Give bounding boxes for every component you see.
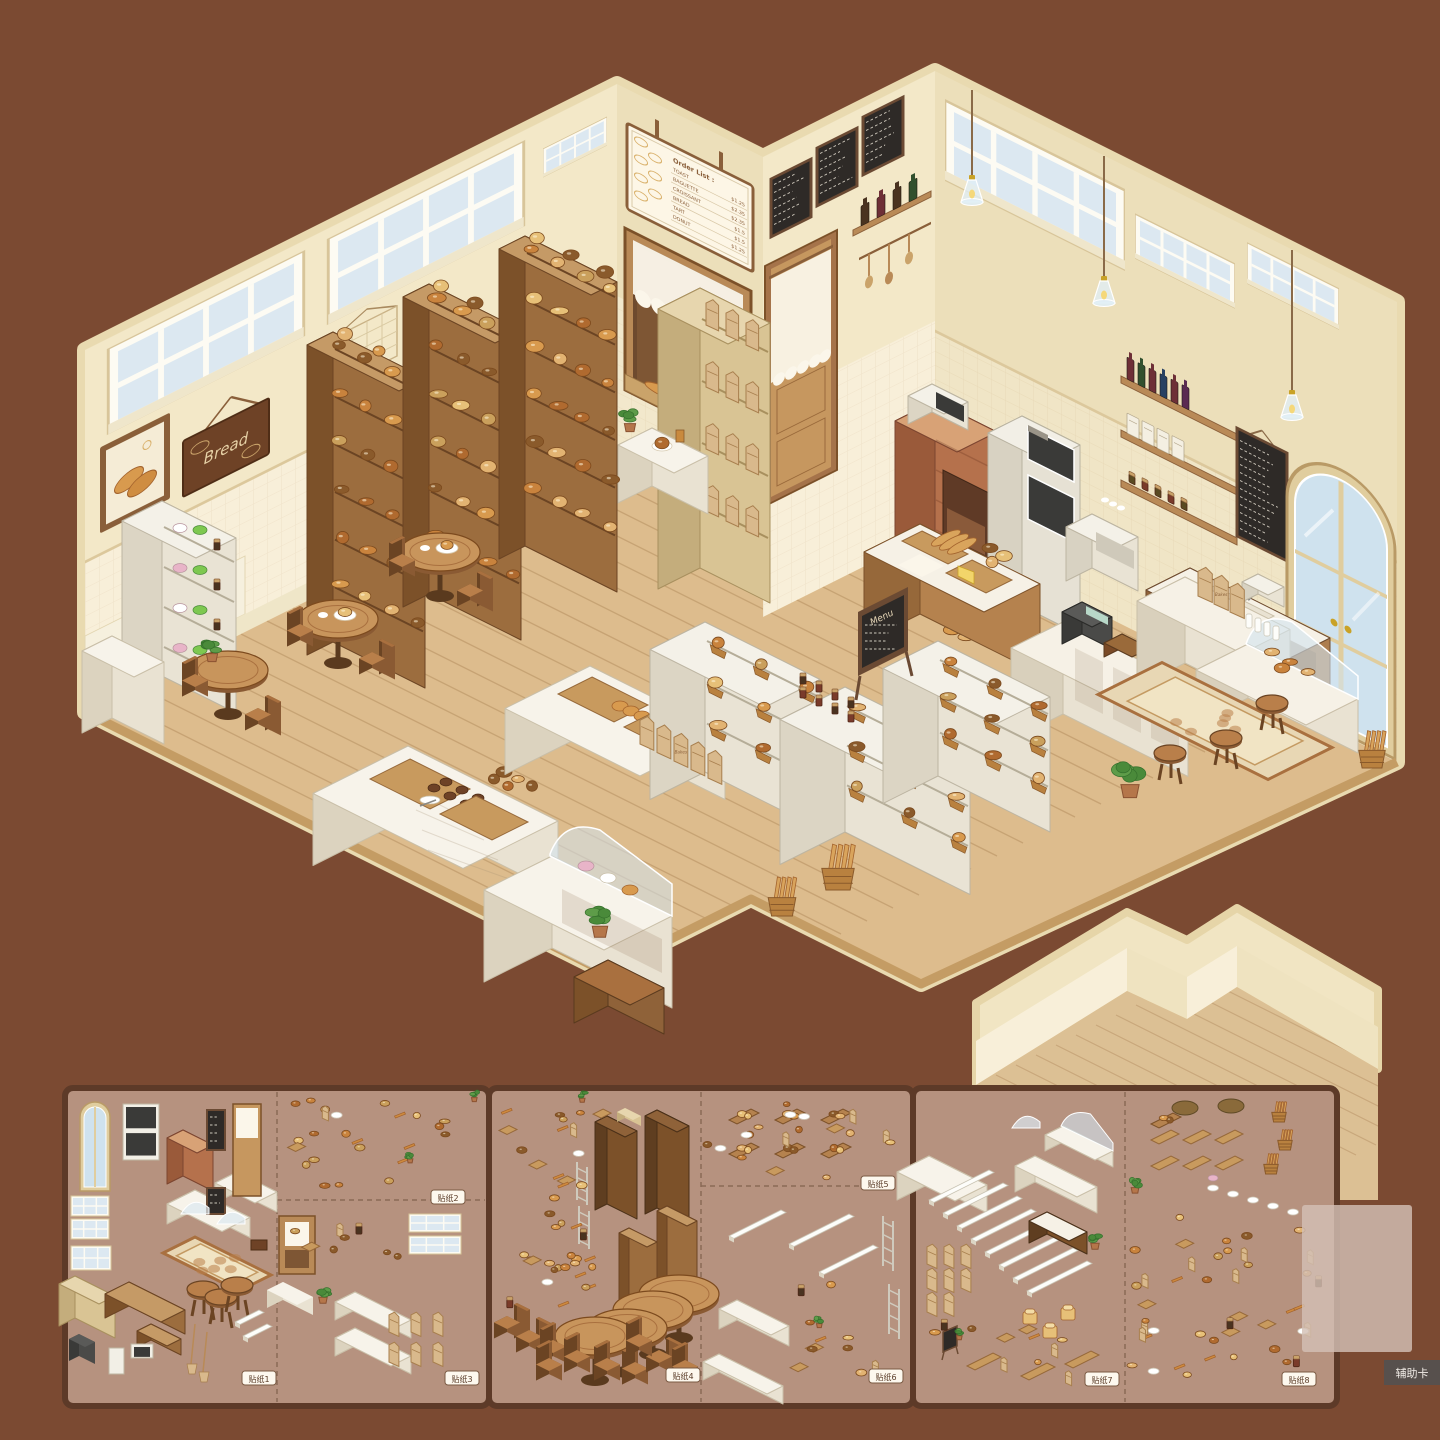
px: [527, 388, 542, 399]
px: [861, 202, 869, 226]
px: [458, 308, 462, 310]
px: [193, 566, 207, 575]
px: [691, 742, 705, 776]
paper-bag: [389, 1342, 399, 1366]
px: [843, 1335, 853, 1340]
px: [953, 794, 957, 796]
px: [853, 744, 857, 746]
px: [711, 680, 715, 682]
px: [944, 694, 948, 696]
px: [553, 353, 566, 365]
paper-bag: [944, 1292, 954, 1316]
paper-bag: [746, 320, 759, 351]
px: [526, 292, 542, 304]
px: [1142, 1318, 1149, 1323]
px: [927, 1268, 937, 1292]
px: [933, 1331, 935, 1332]
px: [512, 776, 525, 783]
px: [1216, 1255, 1218, 1256]
px: [1160, 373, 1167, 399]
px: [726, 434, 739, 465]
px: [1255, 618, 1261, 632]
px: [388, 512, 392, 514]
px: [1025, 1309, 1035, 1314]
px: [740, 1156, 742, 1157]
px: [386, 510, 399, 520]
px: [991, 681, 995, 683]
px: [1198, 1333, 1200, 1334]
px: [595, 1116, 607, 1210]
jam-jar: [507, 1297, 513, 1308]
px: [563, 250, 579, 260]
px: [1172, 1101, 1198, 1115]
px: [214, 619, 220, 622]
px: [1218, 1099, 1244, 1113]
px: [1101, 498, 1109, 503]
px: [676, 430, 684, 442]
px: [1127, 357, 1134, 383]
px: [338, 607, 352, 616]
px: [783, 1102, 790, 1107]
px: [623, 412, 634, 419]
px: [798, 1288, 804, 1296]
px: [526, 340, 545, 352]
px: [877, 194, 885, 218]
px: [800, 690, 806, 698]
px: [126, 1107, 156, 1128]
px: [554, 260, 558, 262]
px: [1035, 703, 1039, 705]
px: [484, 559, 488, 561]
px: [520, 1149, 522, 1150]
px: [208, 1265, 220, 1273]
px: [414, 1114, 416, 1115]
px: [359, 498, 374, 506]
poster-canvas: Bread Order List : TOAST$1.25BAGUETTE$2.…: [0, 0, 1440, 1440]
px: [574, 509, 590, 518]
px: [360, 400, 372, 412]
sheet-zone-tag: 贴纸8: [1282, 1372, 1316, 1386]
px: [604, 380, 608, 382]
px: [1219, 714, 1231, 722]
px: [318, 612, 328, 618]
sheet-zone-tag: 贴纸3: [445, 1371, 479, 1385]
px: [1057, 1338, 1067, 1342]
aux-tag-label: 辅助卡: [1396, 1366, 1429, 1380]
px: [955, 835, 959, 837]
px: [1285, 1361, 1287, 1362]
px: [603, 284, 616, 294]
paper-bag: [927, 1244, 937, 1268]
px: [435, 1123, 444, 1130]
px: [214, 622, 220, 630]
px: [851, 781, 862, 791]
px: [576, 1111, 584, 1116]
px: [458, 451, 462, 453]
sheet-zone-tag-label: 贴纸8: [1288, 1375, 1309, 1385]
px: [570, 1260, 579, 1265]
paper-bag: [961, 1244, 971, 1268]
px: [1225, 1249, 1227, 1250]
px: [1224, 1239, 1226, 1240]
px: [832, 706, 838, 714]
px: [1101, 276, 1107, 281]
px: [355, 1144, 365, 1151]
px: [1227, 1318, 1233, 1321]
px: [332, 389, 348, 398]
px: [426, 590, 454, 602]
px: [817, 1324, 823, 1328]
toast-sticker: [1043, 1323, 1057, 1338]
px: [940, 693, 956, 701]
px: [571, 1123, 577, 1138]
px: [484, 464, 488, 466]
px: [1301, 669, 1315, 676]
paper-bag: [746, 382, 759, 413]
px: [432, 342, 436, 344]
px: [955, 1331, 961, 1334]
px: [578, 510, 582, 512]
px: [569, 1254, 571, 1255]
px: [823, 1175, 830, 1180]
px: [441, 1132, 450, 1137]
px: [384, 415, 401, 425]
px: [1246, 614, 1252, 628]
px: [413, 1112, 420, 1118]
px: [429, 340, 442, 350]
px: [440, 778, 452, 786]
paper-bag: [927, 1292, 937, 1316]
px: [443, 1133, 445, 1134]
px: [838, 1149, 840, 1150]
px: [1274, 663, 1290, 673]
px: [387, 464, 391, 466]
px: [558, 1113, 560, 1114]
px: [1132, 1282, 1142, 1289]
px: [1148, 1328, 1159, 1334]
px: [503, 781, 513, 790]
px: [888, 1141, 890, 1142]
paper-bag: [783, 1132, 789, 1147]
px: [859, 1371, 861, 1372]
px: [598, 909, 610, 918]
px: [790, 1147, 798, 1154]
px: [744, 1147, 751, 1154]
oven-sticker: [131, 1344, 153, 1358]
sheet-zone-tag-label: 贴纸6: [875, 1372, 896, 1382]
px: [481, 413, 495, 425]
px: [1149, 368, 1156, 394]
px: [549, 401, 568, 410]
px: [420, 545, 430, 551]
px: [944, 1268, 954, 1292]
px: [816, 698, 822, 706]
px: [452, 400, 470, 410]
px: [553, 450, 557, 452]
px: [1416, 865, 1440, 995]
px: [528, 784, 532, 786]
px: [317, 1289, 327, 1295]
px: [555, 308, 559, 310]
px: [816, 684, 822, 692]
px: [335, 438, 339, 440]
jam-jar: [214, 539, 220, 550]
px: [331, 1248, 333, 1249]
px: [338, 487, 342, 489]
px: [1036, 1361, 1038, 1362]
px: [559, 1222, 561, 1223]
px: [1060, 1338, 1062, 1339]
chalkboard-sticker: [207, 1110, 225, 1150]
px: [530, 391, 534, 393]
aux-card-tag: 辅助卡: [1384, 1360, 1440, 1385]
px: [340, 1235, 349, 1241]
px: [1132, 1180, 1138, 1186]
px: [126, 1133, 156, 1155]
jam-jar: [800, 673, 806, 684]
px: [848, 700, 854, 708]
paper-bag: [706, 300, 719, 331]
px: [658, 441, 662, 443]
px: [1133, 1248, 1135, 1249]
px: [1176, 1214, 1184, 1220]
px: [579, 1184, 581, 1185]
px: [441, 541, 453, 550]
paper-bag: [411, 1342, 421, 1366]
px: [336, 581, 340, 583]
bread-shelf: [499, 232, 620, 592]
paper-bag: [746, 506, 759, 537]
jam-jar: [1293, 1356, 1299, 1367]
px: [1227, 1321, 1233, 1329]
px: [829, 1283, 831, 1284]
px: [737, 1155, 746, 1160]
paper-bag: Bakes: [1214, 575, 1228, 610]
px: [439, 1119, 450, 1123]
px: [1198, 567, 1212, 602]
px: [1279, 666, 1283, 668]
px: [831, 1146, 834, 1147]
px: [996, 551, 1013, 562]
px: [853, 784, 857, 786]
px: [485, 369, 489, 371]
px: [479, 317, 495, 329]
px: [389, 1342, 399, 1366]
px: [1101, 291, 1107, 300]
px: [1230, 1354, 1237, 1360]
px: [1297, 1229, 1299, 1230]
px: [1093, 300, 1115, 307]
px: [1208, 1185, 1219, 1191]
px: [214, 708, 242, 720]
px: [957, 1336, 963, 1340]
px: [798, 1285, 804, 1288]
sheet-zone-tag-label: 贴纸3: [451, 1374, 472, 1384]
jam-jar: [816, 681, 822, 692]
jam-jar: [356, 1223, 362, 1234]
px: [361, 403, 365, 405]
sheet-zone-tag: 贴纸6: [869, 1369, 903, 1383]
px: [941, 1319, 947, 1322]
px: [291, 1101, 300, 1107]
px: [551, 1267, 558, 1273]
px: [1066, 1371, 1072, 1386]
px: [556, 499, 560, 501]
px: [968, 1326, 976, 1332]
px: [407, 1159, 413, 1163]
px: [341, 331, 345, 333]
px: [384, 367, 400, 377]
px: [459, 499, 463, 501]
px: [607, 477, 611, 479]
px: [768, 898, 796, 916]
paper-bag: [944, 1268, 954, 1292]
px: [1167, 1117, 1174, 1123]
px: [533, 235, 537, 237]
px: [384, 605, 399, 615]
px: [1031, 701, 1047, 709]
px: [746, 444, 759, 475]
px: [555, 403, 559, 405]
px: [592, 926, 607, 937]
px: [520, 1252, 529, 1258]
px: [573, 1150, 584, 1156]
jam-jar: [848, 711, 854, 722]
px: [322, 1106, 328, 1121]
tall-shelf-sticker: [595, 1116, 637, 1219]
px: [961, 199, 983, 206]
px: [296, 1139, 298, 1140]
px: [549, 1195, 559, 1201]
px: [453, 306, 471, 316]
px: [428, 483, 441, 492]
px: [579, 463, 583, 465]
px: [1256, 695, 1288, 711]
px: [530, 232, 545, 244]
px: [322, 1184, 324, 1185]
px: [848, 714, 854, 722]
px: [838, 1115, 840, 1116]
px: [803, 684, 807, 686]
px: [703, 1141, 712, 1147]
px: [360, 546, 377, 555]
px: [507, 1300, 513, 1308]
px: [708, 677, 723, 688]
px: [341, 610, 345, 612]
px: [251, 1240, 267, 1250]
px: [606, 524, 610, 526]
px: [304, 1163, 306, 1164]
px: [1205, 1278, 1207, 1279]
px: [816, 695, 822, 698]
paper-bag: [1001, 1357, 1007, 1372]
px: [1117, 506, 1125, 511]
px: [336, 391, 340, 393]
px: [456, 786, 468, 794]
px: [214, 582, 220, 590]
px: [545, 1260, 555, 1266]
px: [437, 283, 441, 285]
px: [756, 743, 771, 752]
paper-bag: [944, 1244, 954, 1268]
px: [567, 1252, 575, 1258]
paper-bag: [706, 362, 719, 393]
px: [590, 1265, 592, 1266]
px: [573, 1262, 575, 1263]
px: [603, 332, 607, 334]
px: [746, 382, 759, 413]
px: [558, 1220, 565, 1226]
px: [373, 346, 385, 356]
px: [490, 777, 494, 779]
window-sticker: [409, 1236, 461, 1254]
px: [1214, 1253, 1223, 1260]
px: [531, 439, 535, 441]
paper-bag: [1139, 1327, 1145, 1342]
paper-bag: [850, 1109, 856, 1124]
px: [575, 364, 590, 376]
px: [479, 558, 497, 566]
px: [1436, 855, 1440, 985]
px: [1182, 384, 1189, 410]
px: [706, 362, 719, 393]
px: [622, 885, 638, 895]
px: [705, 1143, 707, 1144]
px: [229, 1254, 241, 1262]
px: [504, 784, 508, 786]
px: [375, 348, 379, 350]
px: [434, 439, 438, 441]
px: [550, 307, 568, 315]
sheet-zone-tag: 贴纸1: [242, 1371, 276, 1385]
px: [806, 1320, 815, 1325]
px: [760, 704, 764, 706]
px: [1224, 1248, 1232, 1254]
px: [1142, 1274, 1148, 1289]
px: [196, 1267, 208, 1275]
px: [411, 1312, 421, 1336]
px: [429, 390, 447, 398]
px: [645, 1110, 657, 1214]
paper-bag: [640, 717, 654, 751]
px: [499, 236, 525, 559]
px: [988, 716, 992, 718]
px: [337, 1183, 339, 1184]
px: [109, 1348, 124, 1374]
paper-bag: [1142, 1274, 1148, 1289]
paper-bag: [1066, 1371, 1072, 1386]
px: [457, 403, 461, 405]
px: [342, 1130, 351, 1137]
px: [1212, 1339, 1214, 1340]
px: [1161, 1116, 1164, 1117]
px: [589, 1263, 596, 1270]
px: [331, 1112, 342, 1118]
px: [203, 641, 215, 650]
px: [843, 1345, 853, 1351]
px: [556, 356, 560, 358]
px: [1287, 660, 1291, 662]
px: [1246, 1263, 1248, 1264]
px: [467, 297, 483, 309]
px: [1283, 1359, 1291, 1364]
px: [552, 496, 567, 508]
px: [726, 310, 739, 341]
px: [1183, 1372, 1191, 1377]
px: [1130, 1246, 1140, 1253]
px: [551, 257, 565, 267]
px: [1272, 1348, 1274, 1349]
